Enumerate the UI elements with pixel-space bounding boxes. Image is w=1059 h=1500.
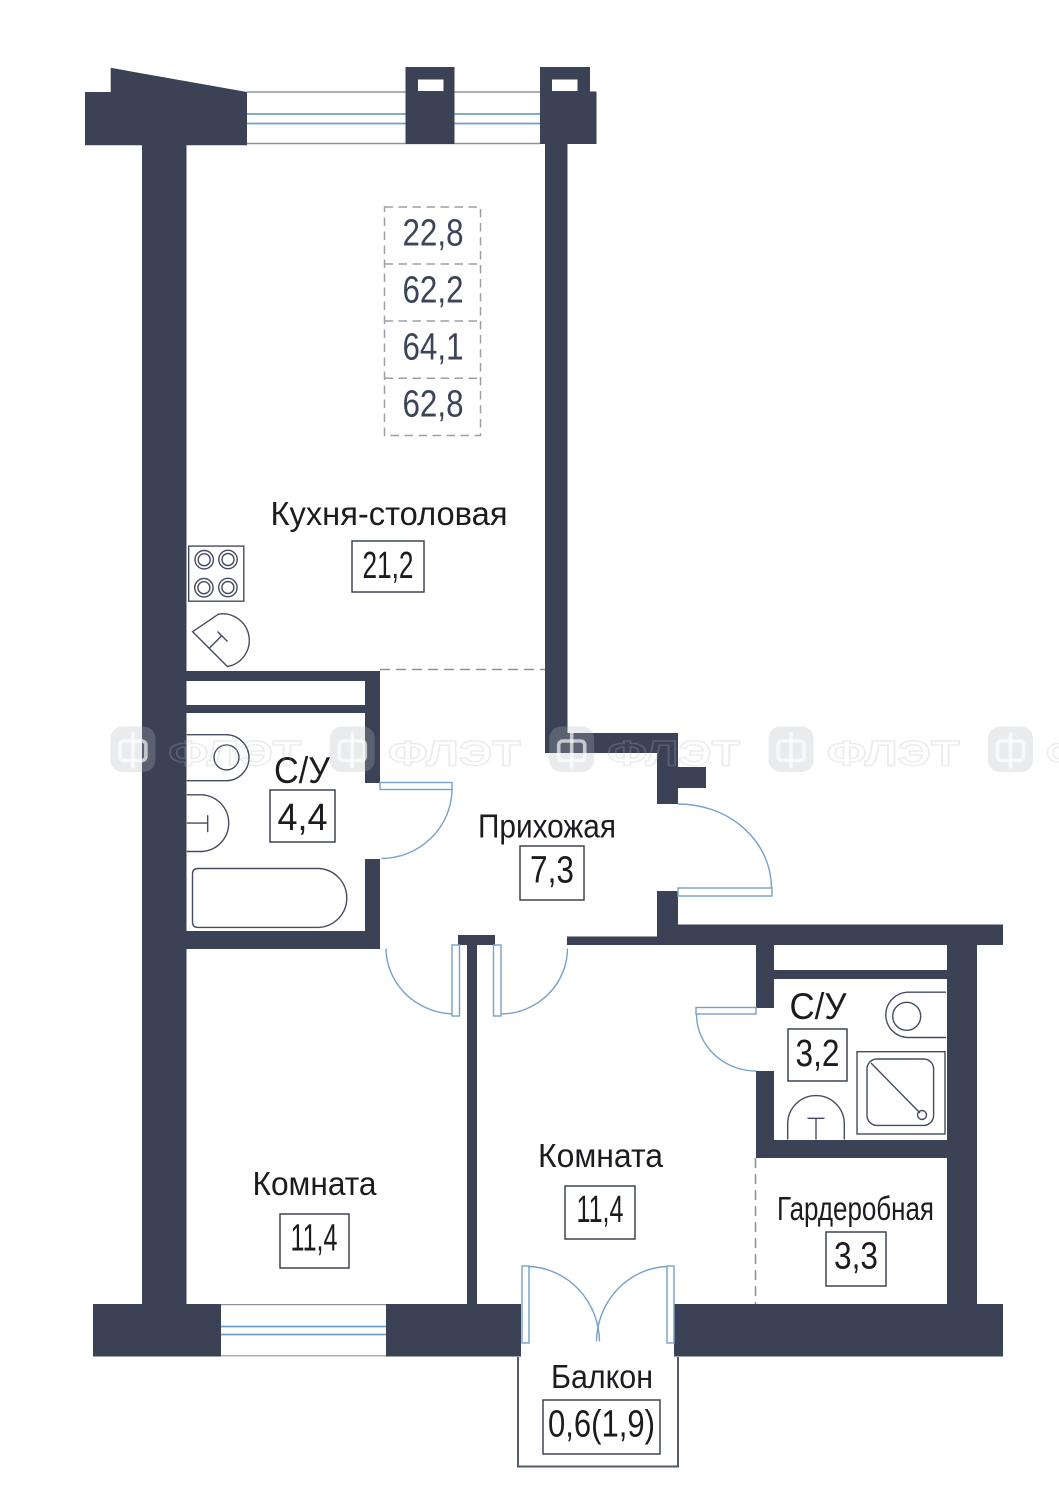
svg-text:Балкон: Балкон bbox=[551, 1358, 653, 1395]
svg-text:Комната: Комната bbox=[253, 1165, 378, 1202]
svg-text:ФЛЭТ: ФЛЭТ bbox=[388, 735, 521, 774]
svg-text:62,8: 62,8 bbox=[403, 384, 464, 426]
svg-text:Кухня-столовая: Кухня-столовая bbox=[271, 495, 508, 532]
svg-text:0,6(1,9): 0,6(1,9) bbox=[548, 1404, 655, 1446]
svg-text:11,4: 11,4 bbox=[577, 1189, 624, 1231]
svg-text:3,3: 3,3 bbox=[834, 1236, 878, 1278]
svg-text:7,3: 7,3 bbox=[530, 850, 574, 892]
svg-text:Гардеробная: Гардеробная bbox=[777, 1190, 934, 1227]
svg-text:21,2: 21,2 bbox=[363, 545, 414, 587]
svg-text:ФЛ: ФЛ bbox=[1046, 735, 1059, 774]
svg-text:11,4: 11,4 bbox=[291, 1218, 338, 1260]
svg-text:ФЛЭТ: ФЛЭТ bbox=[607, 735, 740, 774]
svg-text:Комната: Комната bbox=[538, 1137, 664, 1174]
svg-text:4,4: 4,4 bbox=[278, 797, 328, 839]
svg-text:Прихожая: Прихожая bbox=[478, 808, 616, 845]
svg-text:22,8: 22,8 bbox=[403, 213, 464, 255]
svg-text:ФЛЭТ: ФЛЭТ bbox=[827, 735, 960, 774]
svg-text:С/У: С/У bbox=[790, 986, 847, 1027]
svg-text:62,2: 62,2 bbox=[403, 270, 464, 312]
svg-text:ФЛЭТ: ФЛЭТ bbox=[168, 735, 301, 774]
svg-text:3,2: 3,2 bbox=[796, 1033, 840, 1075]
svg-text:64,1: 64,1 bbox=[403, 327, 464, 369]
